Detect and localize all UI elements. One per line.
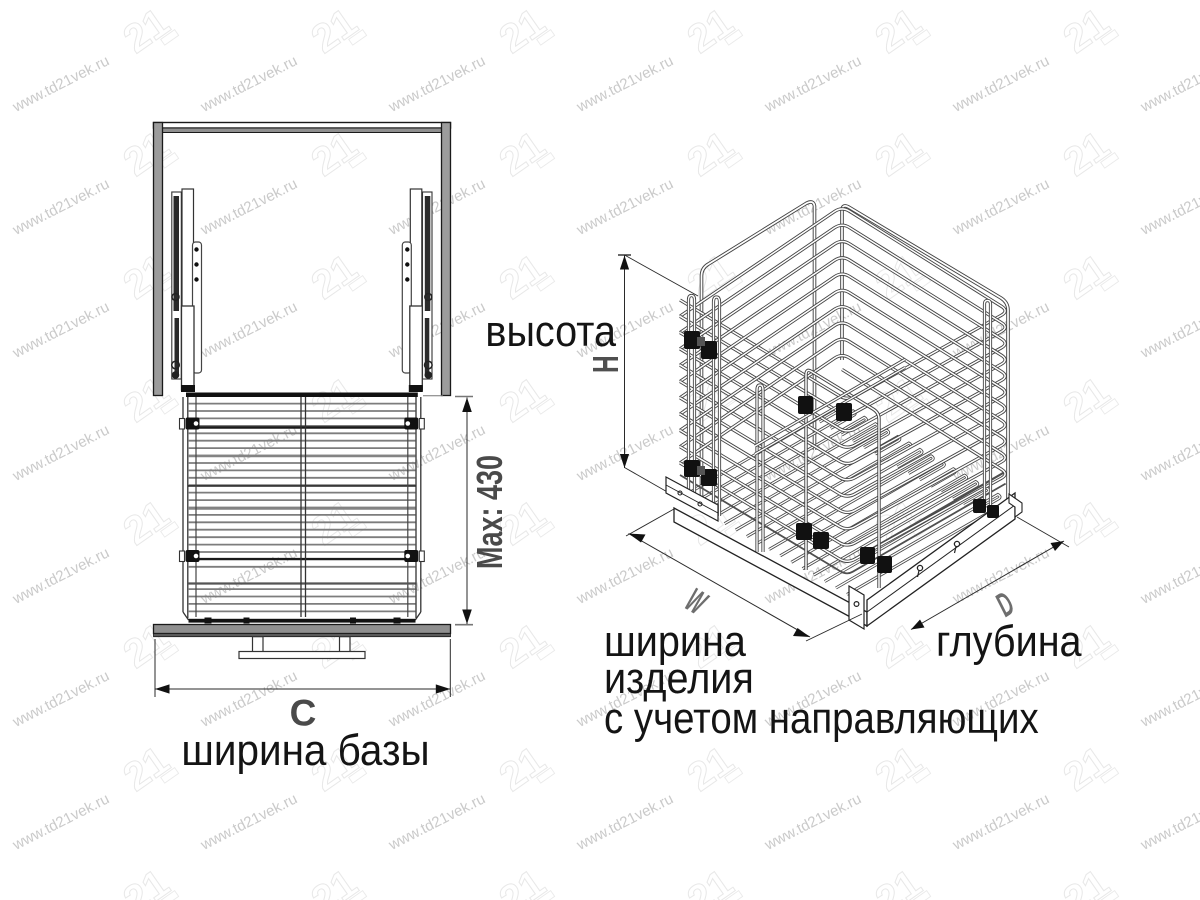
svg-text:www.td21vek.ru: www.td21vek.ru bbox=[9, 790, 112, 854]
svg-text:21: 21 bbox=[116, 369, 178, 431]
svg-text:21: 21 bbox=[868, 738, 930, 800]
svg-text:21: 21 bbox=[304, 246, 366, 308]
svg-text:21: 21 bbox=[1056, 246, 1118, 308]
svg-text:www.td21vek.ru: www.td21vek.ru bbox=[197, 667, 300, 731]
svg-text:21: 21 bbox=[116, 492, 178, 554]
svg-text:www.td21vek.ru: www.td21vek.ru bbox=[385, 790, 488, 854]
svg-text:www.td21vek.ru: www.td21vek.ru bbox=[385, 52, 488, 116]
svg-text:21: 21 bbox=[868, 123, 930, 185]
svg-text:www.td21vek.ru: www.td21vek.ru bbox=[1137, 790, 1200, 854]
svg-text:www.td21vek.ru: www.td21vek.ru bbox=[1137, 421, 1200, 485]
svg-text:21: 21 bbox=[304, 861, 366, 900]
svg-text:www.td21vek.ru: www.td21vek.ru bbox=[197, 175, 300, 239]
svg-text:www.td21vek.ru: www.td21vek.ru bbox=[949, 52, 1052, 116]
svg-text:21: 21 bbox=[492, 738, 554, 800]
svg-text:21: 21 bbox=[1056, 861, 1118, 900]
svg-text:www.td21vek.ru: www.td21vek.ru bbox=[9, 298, 112, 362]
svg-text:ширина базы: ширина базы bbox=[181, 725, 429, 774]
svg-text:www.td21vek.ru: www.td21vek.ru bbox=[197, 298, 300, 362]
svg-text:www.td21vek.ru: www.td21vek.ru bbox=[197, 421, 300, 485]
svg-text:www.td21vek.ru: www.td21vek.ru bbox=[385, 175, 488, 239]
svg-text:www.td21vek.ru: www.td21vek.ru bbox=[197, 52, 300, 116]
svg-text:www.td21vek.ru: www.td21vek.ru bbox=[1137, 52, 1200, 116]
svg-text:www.td21vek.ru: www.td21vek.ru bbox=[573, 544, 676, 608]
svg-text:www.td21vek.ru: www.td21vek.ru bbox=[761, 52, 864, 116]
svg-text:21: 21 bbox=[680, 123, 742, 185]
svg-text:21: 21 bbox=[492, 861, 554, 900]
svg-text:21: 21 bbox=[492, 123, 554, 185]
svg-text:www.td21vek.ru: www.td21vek.ru bbox=[197, 544, 300, 608]
svg-text:21: 21 bbox=[1056, 738, 1118, 800]
svg-text:www.td21vek.ru: www.td21vek.ru bbox=[197, 790, 300, 854]
svg-text:21: 21 bbox=[1056, 369, 1118, 431]
svg-text:21: 21 bbox=[492, 615, 554, 677]
svg-text:www.td21vek.ru: www.td21vek.ru bbox=[1137, 544, 1200, 608]
svg-text:21: 21 bbox=[492, 246, 554, 308]
svg-text:21: 21 bbox=[116, 861, 178, 900]
svg-text:21: 21 bbox=[1056, 0, 1118, 62]
svg-text:21: 21 bbox=[304, 369, 366, 431]
svg-text:глубина: глубина bbox=[936, 616, 1082, 665]
svg-text:Max: 430: Max: 430 bbox=[469, 455, 510, 569]
svg-text:www.td21vek.ru: www.td21vek.ru bbox=[385, 667, 488, 731]
svg-text:21: 21 bbox=[868, 861, 930, 900]
svg-text:21: 21 bbox=[680, 738, 742, 800]
svg-text:www.td21vek.ru: www.td21vek.ru bbox=[1137, 175, 1200, 239]
svg-text:21: 21 bbox=[492, 0, 554, 62]
svg-text:высота: высота bbox=[485, 306, 616, 355]
svg-text:www.td21vek.ru: www.td21vek.ru bbox=[9, 52, 112, 116]
svg-text:www.td21vek.ru: www.td21vek.ru bbox=[949, 175, 1052, 239]
svg-text:www.td21vek.ru: www.td21vek.ru bbox=[9, 421, 112, 485]
svg-text:www.td21vek.ru: www.td21vek.ru bbox=[573, 175, 676, 239]
svg-text:www.td21vek.ru: www.td21vek.ru bbox=[9, 544, 112, 608]
svg-text:www.td21vek.ru: www.td21vek.ru bbox=[573, 52, 676, 116]
svg-text:www.td21vek.ru: www.td21vek.ru bbox=[1137, 298, 1200, 362]
svg-text:с учетом направляющих: с учетом направляющих bbox=[604, 694, 1039, 743]
svg-text:www.td21vek.ru: www.td21vek.ru bbox=[949, 790, 1052, 854]
svg-text:www.td21vek.ru: www.td21vek.ru bbox=[573, 790, 676, 854]
svg-text:21: 21 bbox=[116, 246, 178, 308]
svg-text:www.td21vek.ru: www.td21vek.ru bbox=[761, 790, 864, 854]
svg-text:21: 21 bbox=[492, 369, 554, 431]
svg-text:21: 21 bbox=[116, 738, 178, 800]
svg-text:www.td21vek.ru: www.td21vek.ru bbox=[385, 298, 488, 362]
svg-text:21: 21 bbox=[680, 861, 742, 900]
svg-text:21: 21 bbox=[680, 0, 742, 62]
svg-text:www.td21vek.ru: www.td21vek.ru bbox=[9, 175, 112, 239]
svg-text:21: 21 bbox=[868, 0, 930, 62]
svg-text:H: H bbox=[585, 355, 626, 373]
svg-text:21: 21 bbox=[304, 0, 366, 62]
svg-text:www.td21vek.ru: www.td21vek.ru bbox=[1137, 667, 1200, 731]
svg-text:21: 21 bbox=[116, 0, 178, 62]
svg-text:www.td21vek.ru: www.td21vek.ru bbox=[9, 667, 112, 731]
svg-text:21: 21 bbox=[1056, 123, 1118, 185]
